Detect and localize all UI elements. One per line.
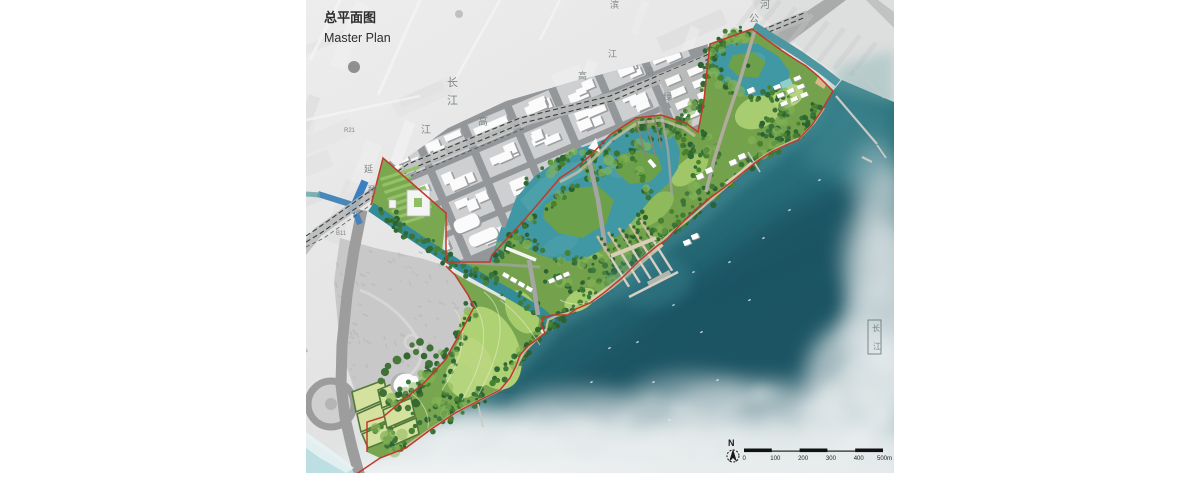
svg-text:100: 100 <box>770 456 781 462</box>
svg-text:高: 高 <box>478 115 488 128</box>
svg-text:N: N <box>728 438 735 448</box>
svg-text:江: 江 <box>447 94 458 107</box>
svg-text:绿: 绿 <box>663 91 672 102</box>
svg-text:B11: B11 <box>336 231 347 237</box>
svg-text:滨: 滨 <box>610 0 619 10</box>
svg-text:高: 高 <box>578 70 587 81</box>
svg-text:R21: R21 <box>344 128 356 134</box>
svg-text:河: 河 <box>760 0 770 11</box>
svg-text:江: 江 <box>873 342 881 351</box>
svg-text:翔: 翔 <box>368 184 377 195</box>
svg-text:延: 延 <box>364 163 373 174</box>
svg-text:长: 长 <box>447 76 458 89</box>
svg-text:200: 200 <box>798 456 809 462</box>
svg-text:长: 长 <box>872 323 880 333</box>
svg-text:江: 江 <box>608 49 617 59</box>
svg-text:江: 江 <box>421 124 431 136</box>
svg-text:400: 400 <box>854 456 865 462</box>
svg-text:300: 300 <box>826 456 837 462</box>
svg-text:500m: 500m <box>877 456 892 462</box>
svg-text:Master Plan: Master Plan <box>324 31 391 45</box>
svg-text:沿: 沿 <box>645 67 654 77</box>
svg-text:总平面图: 总平面图 <box>324 10 376 25</box>
svg-text:公: 公 <box>749 14 759 25</box>
